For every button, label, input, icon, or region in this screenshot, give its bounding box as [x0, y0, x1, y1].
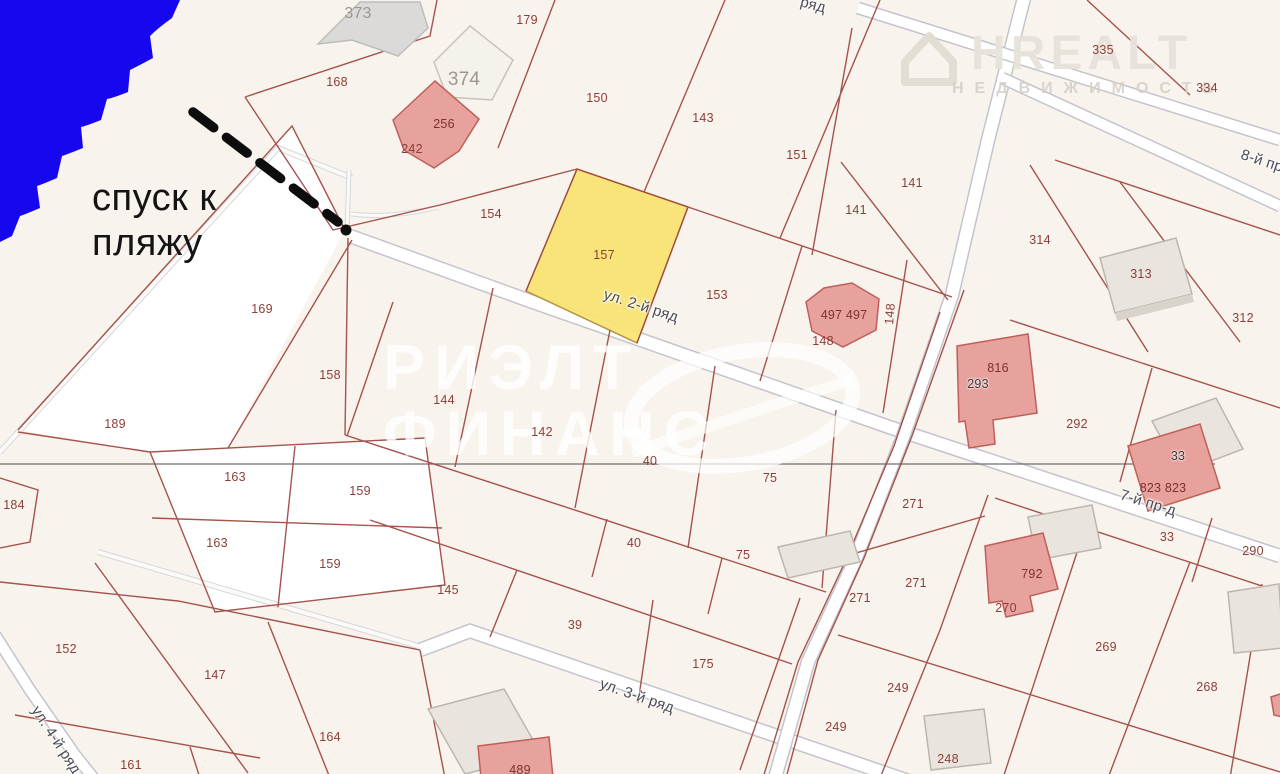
cadastral-map: НREALT НЕДВИЖИМОСТЬ РИЭЛТ ФИНАНС 3733741… — [0, 0, 1280, 774]
watermark-brand: НREALT — [971, 26, 1192, 81]
house-icon — [897, 20, 961, 86]
beach-note-line2: пляжу — [92, 221, 216, 266]
watermark-line1: РИЭЛТ — [383, 336, 718, 402]
watermark-line2: ФИНАНС — [383, 402, 718, 468]
beach-note-line1: спуск к — [92, 176, 216, 221]
watermark-subtitle: НЕДВИЖИМОСТЬ — [952, 80, 1225, 98]
building-248-gray — [924, 709, 991, 770]
realt-watermark: НREALT — [897, 20, 1192, 86]
rielt-finans-watermark: РИЭЛТ ФИНАНС — [383, 336, 718, 467]
beach-descent-note: спуск к пляжу — [92, 176, 216, 266]
building-br-gray — [1228, 584, 1280, 653]
